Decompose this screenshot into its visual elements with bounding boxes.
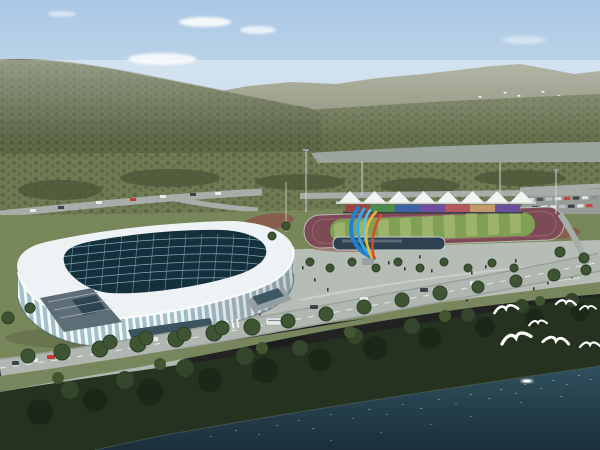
atmospheric-haze xyxy=(0,60,600,140)
boat-highlight xyxy=(521,379,533,383)
aerial-rendering xyxy=(0,0,600,450)
reflecting-pool xyxy=(333,237,445,250)
scene-svg xyxy=(0,0,600,450)
bus xyxy=(266,318,283,325)
grandstand-seats xyxy=(345,205,520,213)
